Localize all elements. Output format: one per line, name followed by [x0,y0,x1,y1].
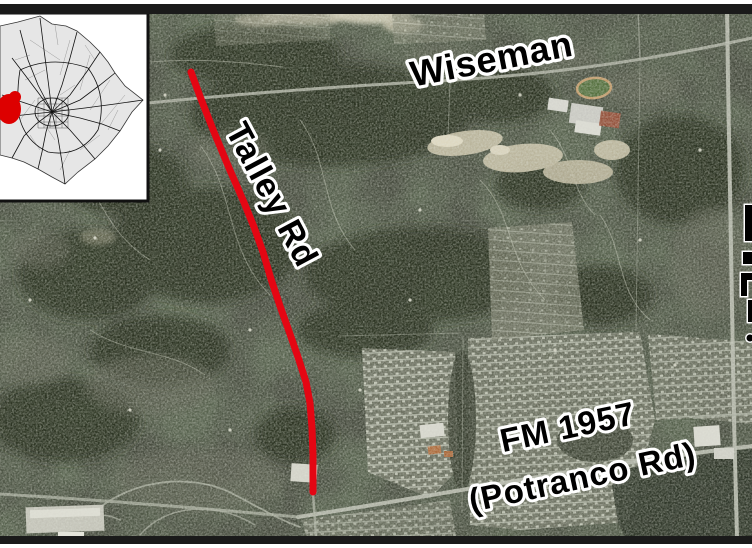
aerial-map-canvas: Wiseman Talley Rd FM 1957 (Potranco Rd) [0,0,752,548]
study-area-marker [0,91,21,124]
county-locator-inset [0,13,148,201]
map-figure: Wiseman Talley Rd FM 1957 (Potranco Rd) [0,0,752,548]
